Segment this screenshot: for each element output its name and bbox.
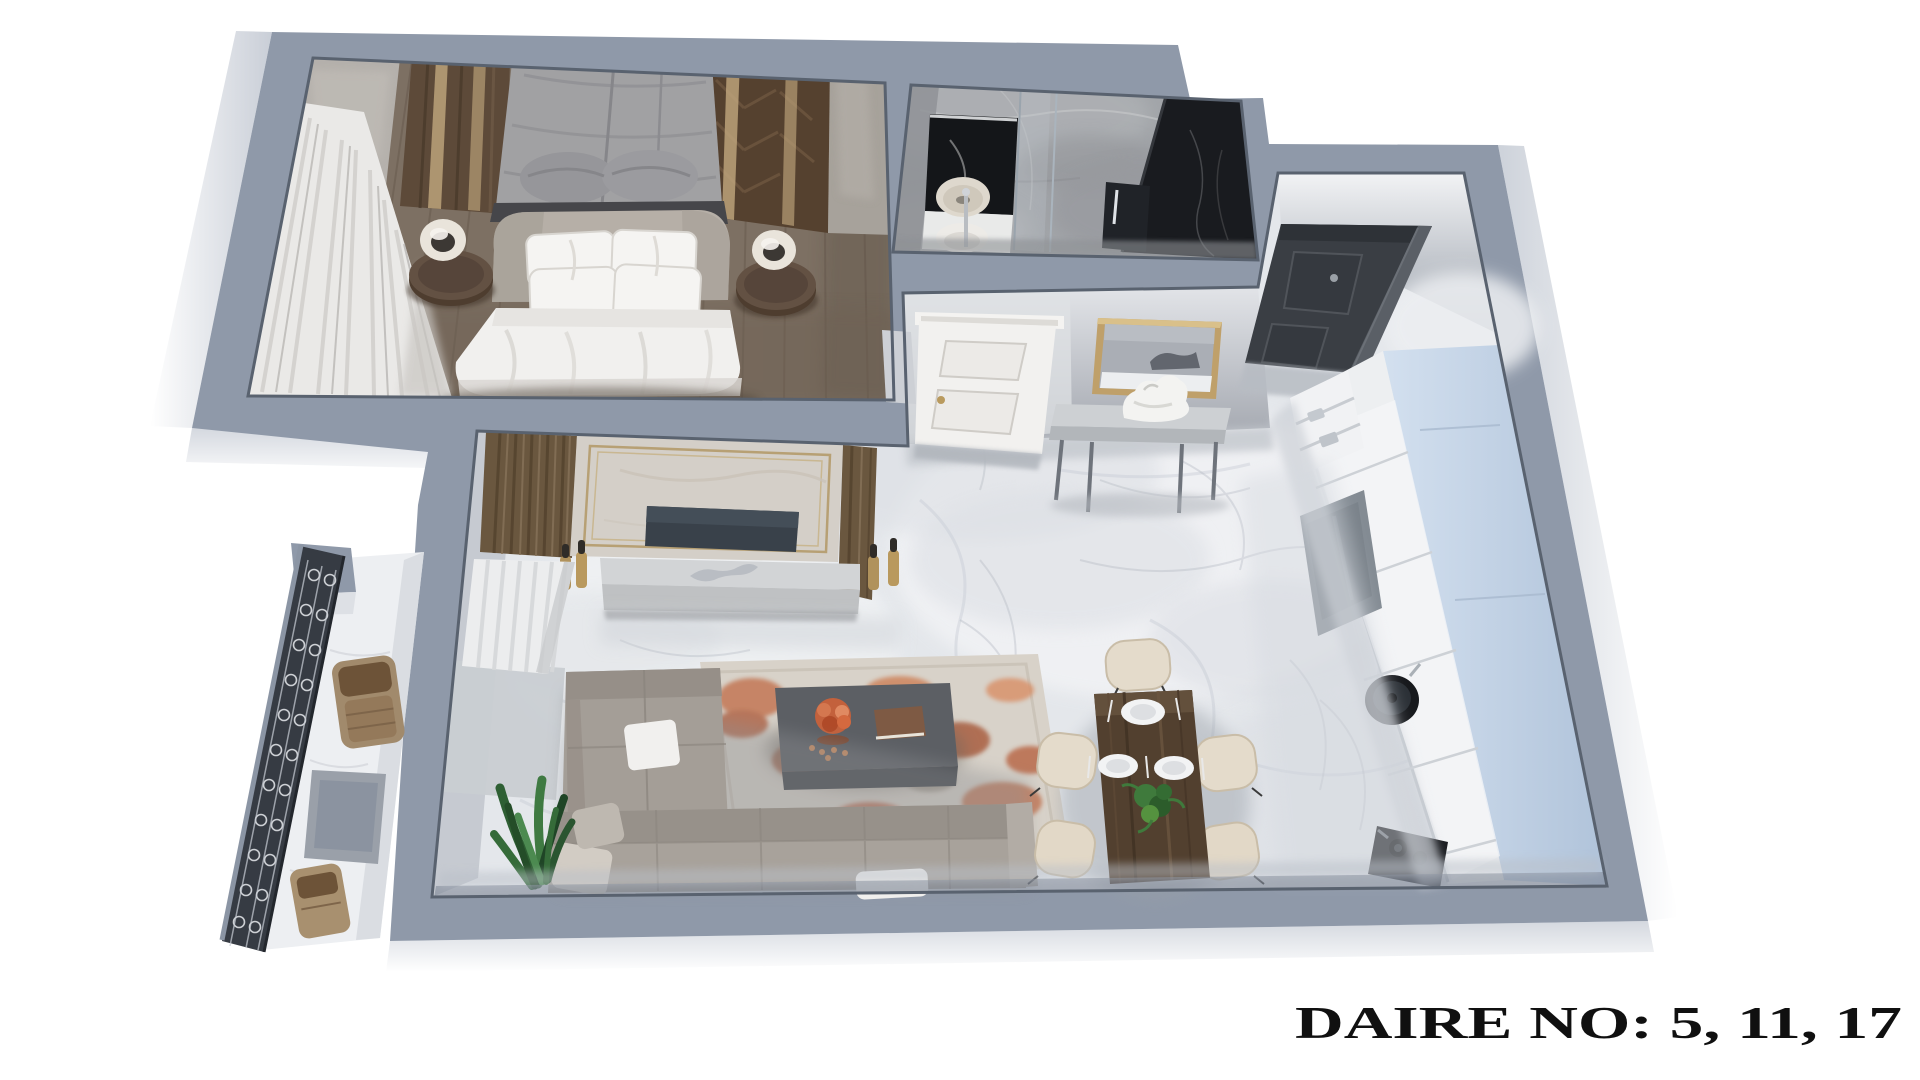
svg-text:DAIRE NO: 5, 11, 17: DAIRE NO: 5, 11, 17 — [1295, 997, 1902, 1048]
